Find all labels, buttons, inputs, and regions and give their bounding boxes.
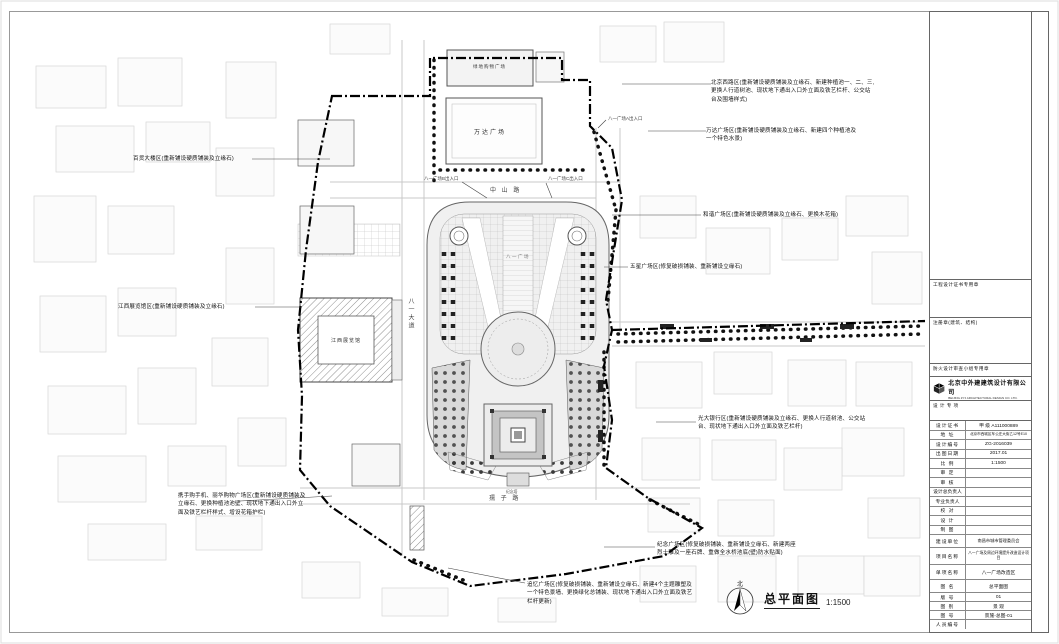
- titleblock-row: 地 址北京市西城区车公庄大街乙12号E10: [930, 431, 1031, 441]
- titleblock-row: 审 定: [930, 469, 1031, 479]
- metro-exit-c-label: 八一广场C出入口: [548, 176, 583, 182]
- plaza-label: 八一广场: [506, 254, 530, 260]
- building-label-greenland: 绿地购物广场: [473, 64, 506, 70]
- north-label: 北: [737, 580, 743, 588]
- annotation-memorial-plaza: 纪念广场区(修复破损铺装、重新铺设立缘石、新建两座烈士雕及一座石牌、重做全水桥池…: [657, 541, 797, 558]
- metro-exit-a-label: 八一广场A出入口: [608, 116, 643, 122]
- annotation-lihua-shopping-plaza: 携手购手机、丽华购物广场区(重新铺设硬质铺装及立缘石、更换种植池池壁、现状地下通…: [178, 492, 306, 517]
- drawing-sheet: 北 北京西路区(重新铺设硬质铺装及立缘石、新建种植池一、二、三,更换人行道树池、…: [0, 0, 1059, 644]
- building-label-wanda: 万达广场: [474, 127, 506, 136]
- titleblock-row: 设 计: [930, 516, 1031, 526]
- company-row: 北京中外建建筑设计有限公司 BEIJING ZYJ ARCHITECTURAL …: [930, 377, 1031, 401]
- titleblock-row: 审 核: [930, 478, 1031, 488]
- stamp-label: 工程设计证书专用章: [933, 282, 979, 287]
- annotation-zhuiyi-plaza: 追忆广场区(修复破损铺装、重新铺设立缘石、新建4个主题雕塑及一个特色景墙、更换绿…: [527, 581, 697, 606]
- annotation-department-store: 百货大楼区(重新铺设硬质铺装及立缘石): [133, 155, 234, 163]
- project-row-subproject-name: 单项名称八一广场改造区: [930, 565, 1031, 580]
- company-name-cn: 北京中外建建筑设计有限公司: [948, 378, 1028, 396]
- annotation-wanda-plaza: 万达广场区(重新铺设硬质铺装及立缘石、新建四个种植池及一个特色水景): [706, 127, 861, 144]
- annotation-guangda-bank: 光大银行区(重新铺设硬质铺装及立缘石、更换人行道树池、公交站台、现状地下通出入口…: [698, 415, 870, 432]
- plan-scale: 1:1500: [826, 598, 850, 609]
- titleblock-row: 专业负责人: [930, 497, 1031, 507]
- metro-exit-b-label: 八一广场B出入口: [424, 176, 459, 182]
- annotation-hexie-plaza: 和谐广场区(重新铺设硬质铺装及立缘石、更换木花箱): [703, 211, 843, 219]
- bayi-square: [427, 202, 609, 486]
- annotation-jiangxi-exhibition: 江西展览馆区(重新铺设硬质铺装及立缘石): [118, 303, 225, 311]
- project-row-drawing-name: 图 名总平面图: [930, 580, 1031, 593]
- project-row-project-name: 项目名称八一广场及周边环境提升改造设计项目: [930, 548, 1031, 565]
- title-block: 工程设计证书专用章 注册章(建筑、结构) 防火设计审查小组专用章 北京中外建建筑…: [929, 11, 1032, 633]
- titleblock-row: 制 图: [930, 526, 1031, 536]
- project-row-drawing-no: 图 号景施-总图-01: [930, 611, 1031, 620]
- road-label-zhongshan: 中 山 路: [490, 185, 521, 194]
- title-block-margin-strip: [1032, 11, 1049, 633]
- project-row-staff-no: 人员编号: [930, 620, 1031, 629]
- project-row-client: 建设单位南昌市城市管理委员会: [930, 535, 1031, 548]
- titleblock-row: 设计证书甲 级 A111000889: [930, 421, 1031, 431]
- stamp-cell-certificate: 工程设计证书专用章: [930, 280, 1031, 318]
- company-logo-icon: [933, 382, 945, 395]
- stamp-cell-registration: 注册章(建筑、结构): [930, 318, 1031, 364]
- titleblock-row: 比 例1:1500: [930, 459, 1031, 469]
- annotation-wuxing-plaza: 五星广场区(修复破损铺装、重新铺设立缘石): [630, 263, 742, 271]
- company-name-en: BEIJING ZYJ ARCHITECTURAL DESIGN CO. LTD…: [948, 396, 1028, 400]
- project-row-category: 图 别景 观: [930, 602, 1031, 611]
- site-plan-drawing: 北: [0, 0, 1059, 644]
- annotation-beijing-west-road: 北京西路区(重新铺设硬质铺装及立缘石、新建种植池一、二、三,更换人行道树池、现状…: [711, 79, 876, 104]
- drawing-title-group: 总平面图 1:1500: [764, 590, 850, 609]
- stamp-cell-fire-review: 防火设计审查小组专用章: [930, 364, 1031, 377]
- project-row-version: 版 号01: [930, 593, 1031, 602]
- monument-label: 纪念塔: [506, 490, 517, 495]
- plan-title: 总平面图: [764, 590, 820, 609]
- stamp-label: 注册章(建筑、结构): [933, 320, 978, 325]
- titleblock-row: 设计编号ZG-2016039: [930, 440, 1031, 450]
- road-label-bayi-avenue: 八一大道: [406, 298, 415, 330]
- titleblock-row: 设计总负责人: [930, 488, 1031, 498]
- stamp-label: 防火设计审查小组专用章: [933, 366, 989, 371]
- titleblock-row: 出图日期2017.01: [930, 450, 1031, 460]
- titleblock-empty-cell: [930, 12, 1031, 280]
- building-label-exhibition: 江西展览馆: [331, 337, 361, 344]
- titleblock-row: 校 对: [930, 507, 1031, 517]
- section-cell: 设 计 专 项: [930, 401, 1031, 421]
- section-label: 设 计 专 项: [933, 403, 959, 408]
